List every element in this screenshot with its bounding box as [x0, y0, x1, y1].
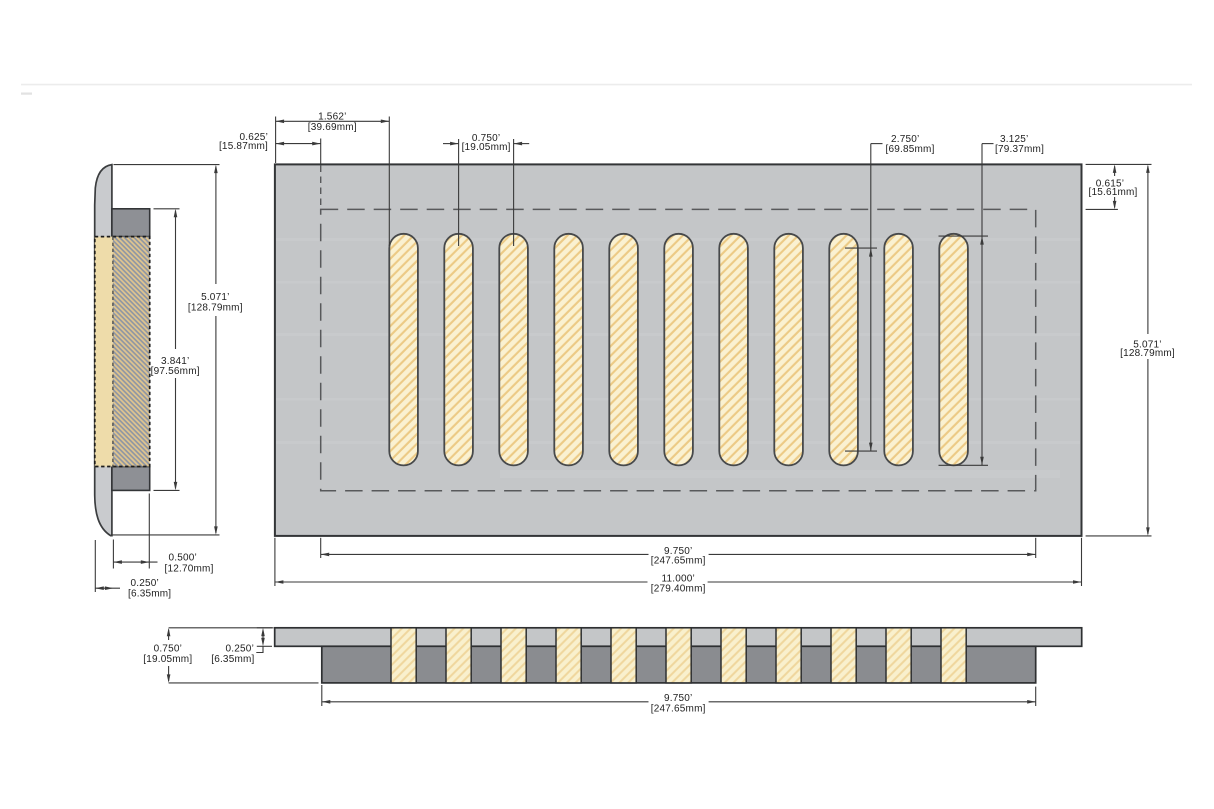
svg-text:1.562’: 1.562’ [318, 111, 346, 122]
svg-text:[128.79mm]: [128.79mm] [188, 302, 243, 313]
svg-text:[15.87mm]: [15.87mm] [219, 141, 268, 152]
svg-text:[247.65mm]: [247.65mm] [651, 556, 706, 567]
svg-text:[247.65mm]: [247.65mm] [651, 704, 706, 715]
svg-text:0.750’: 0.750’ [154, 643, 182, 654]
svg-text:[12.70mm]: [12.70mm] [165, 564, 214, 575]
svg-text:[79.37mm]: [79.37mm] [995, 144, 1044, 155]
svg-text:[97.56mm]: [97.56mm] [151, 366, 200, 377]
svg-text:[6.35mm]: [6.35mm] [128, 588, 171, 599]
svg-text:[6.35mm]: [6.35mm] [211, 654, 254, 665]
svg-text:[19.05mm]: [19.05mm] [143, 654, 192, 665]
svg-text:[15.61mm]: [15.61mm] [1088, 187, 1137, 198]
svg-text:5.071’: 5.071’ [201, 292, 229, 303]
svg-text:0.500’: 0.500’ [169, 552, 197, 563]
svg-text:[279.40mm]: [279.40mm] [651, 584, 706, 595]
svg-text:9.750’: 9.750’ [664, 693, 692, 704]
svg-text:[39.69mm]: [39.69mm] [308, 122, 357, 133]
svg-text:[69.85mm]: [69.85mm] [886, 144, 935, 155]
svg-text:[128.79mm]: [128.79mm] [1120, 348, 1175, 359]
svg-text:0.250’: 0.250’ [226, 643, 254, 654]
svg-text:[19.05mm]: [19.05mm] [462, 142, 511, 153]
